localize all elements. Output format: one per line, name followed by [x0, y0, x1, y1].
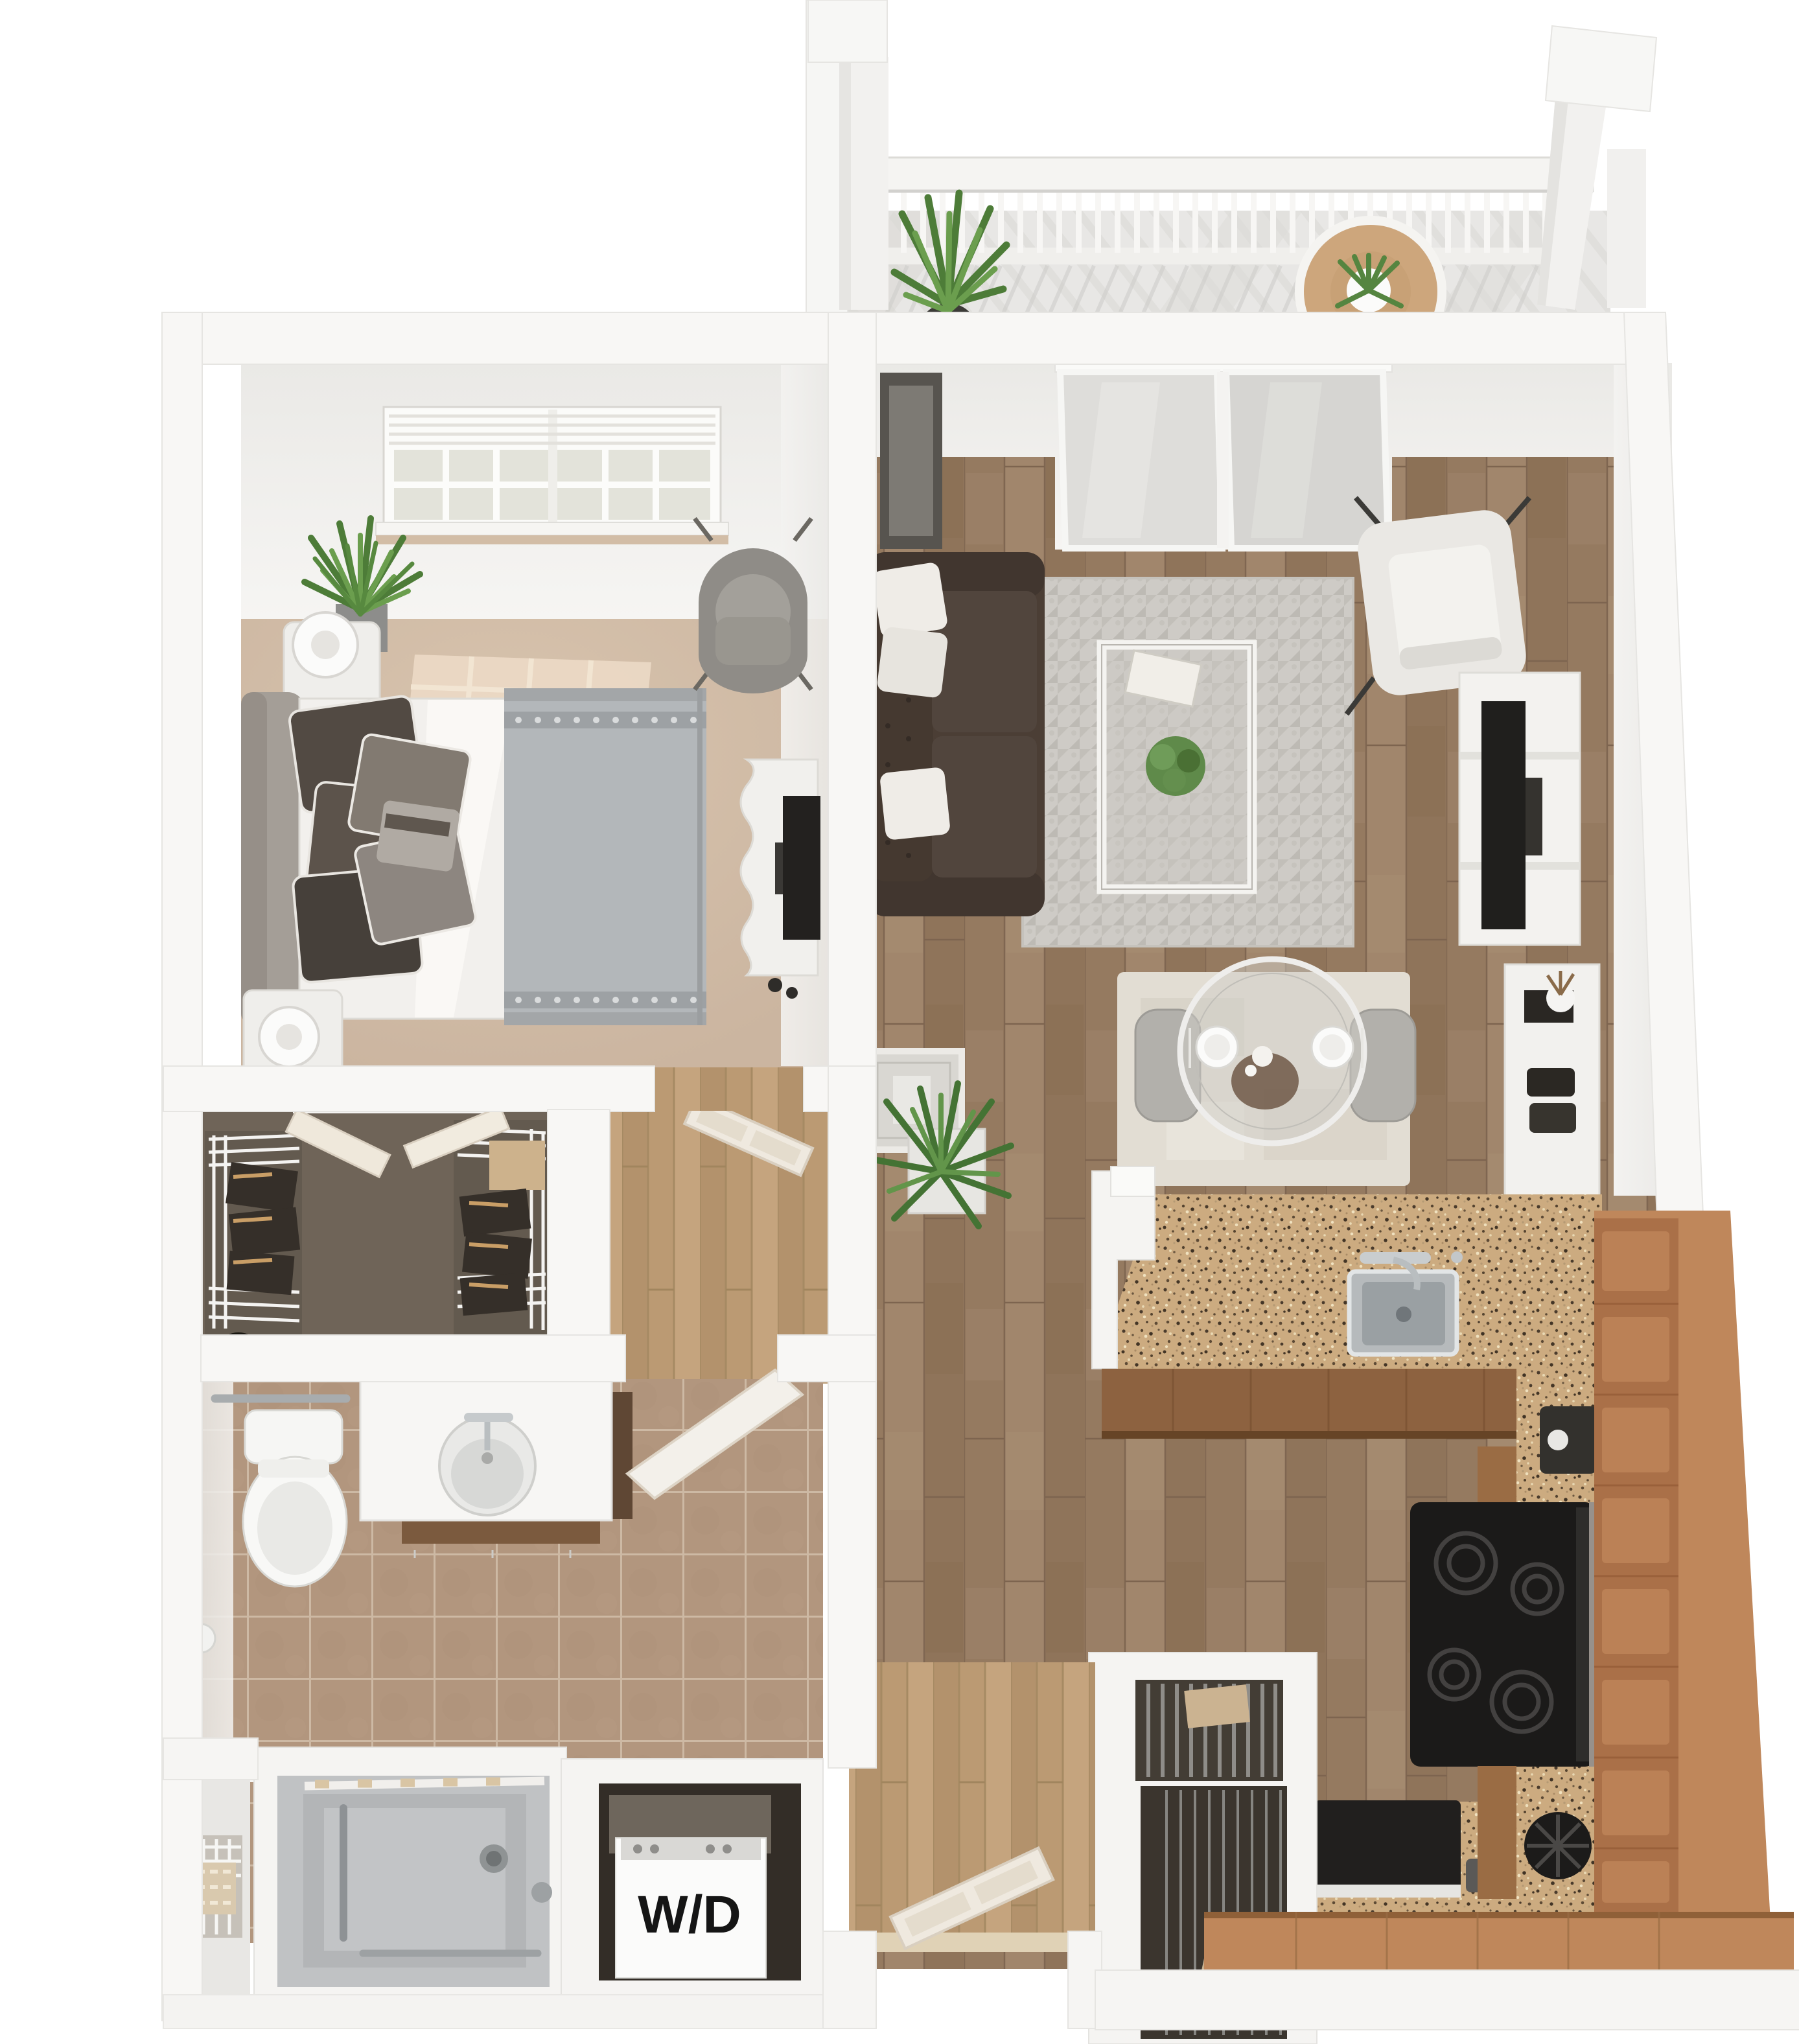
svg-text:W/D: W/D: [638, 1885, 741, 1944]
